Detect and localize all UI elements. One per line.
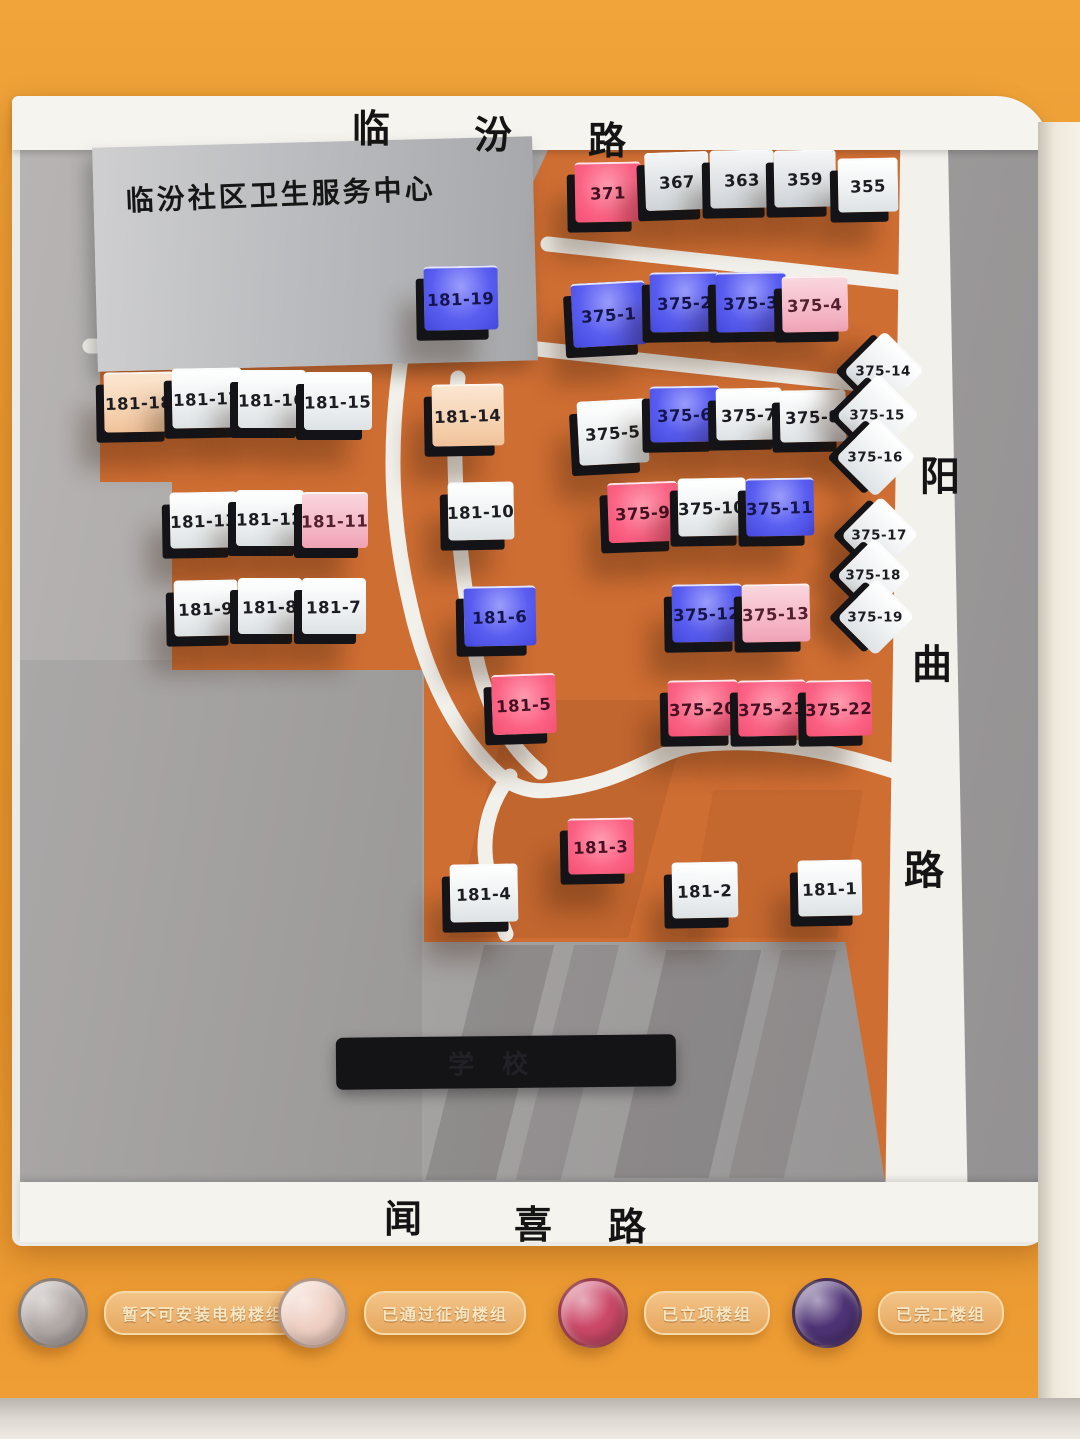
legend-label: 暂不可安装电梯楼组: [104, 1291, 302, 1335]
map-tile-375-11: 375-11: [745, 477, 814, 536]
map-tile-label: 181-15: [304, 392, 372, 412]
map-tile-367: 367: [644, 151, 710, 211]
map-tile-label: 375-6: [657, 405, 713, 426]
legend-item: 已立项楼组: [558, 1278, 770, 1348]
map-tile-181-18: 181-18: [103, 371, 174, 432]
map-tile-label: 375-2: [657, 293, 713, 314]
map-tile-359: 359: [774, 149, 837, 207]
map-tile-label: 375-7: [721, 405, 777, 426]
health-center-panel: 临汾社区卫生服务中心: [92, 136, 538, 371]
map-tile-label: 375-4: [787, 295, 843, 316]
map-tile-181-1: 181-1: [798, 859, 863, 916]
map-tile-label: 181-7: [306, 597, 362, 617]
map-tile-label: 375-13: [742, 603, 810, 624]
street-bottom-char: 路: [608, 1196, 646, 1251]
street-top-char: 路: [588, 110, 626, 165]
map-tile-label: 375-1: [581, 304, 637, 327]
map-tile-181-4: 181-4: [449, 863, 518, 922]
map-tile-181-9: 181-9: [174, 579, 239, 636]
map-tile-375-10: 375-10: [677, 477, 746, 536]
photo-canvas: 临汾社区卫生服务中心 学校 371367363359355181-19375-1…: [0, 0, 1080, 1439]
map-tile-363: 363: [709, 149, 774, 208]
map-tile-375-3: 375-3: [715, 271, 786, 332]
map-tile-label: 181-16: [238, 390, 306, 410]
street-top-char: 临: [352, 98, 390, 153]
street-right-char: 曲: [912, 632, 952, 690]
map-tile-label: 375-20: [669, 698, 737, 719]
map-tile-181-17: 181-17: [171, 367, 242, 428]
map-tile-181-14: 181-14: [431, 383, 504, 446]
map-tile-label: 181-11: [301, 511, 369, 531]
map-tile-375-8: 375-8: [780, 389, 847, 442]
map-tile-label: 181-10: [447, 501, 515, 522]
map-tile-181-13: 181-13: [170, 491, 239, 548]
map-tile-label: 363: [724, 170, 761, 190]
map-tile-label: 371: [590, 183, 627, 203]
map-tile-label: 375-3: [723, 293, 779, 314]
legend-item: 已完工楼组: [792, 1278, 1004, 1348]
map-tile-181-3: 181-3: [568, 817, 635, 874]
map-tile-label: 181-3: [573, 837, 629, 858]
health-center-label: 临汾社区卫生服务中心: [92, 133, 534, 221]
map-tile-181-6: 181-6: [463, 585, 536, 646]
map-tile-375-13: 375-13: [741, 583, 810, 642]
wall-edge-bottom: [0, 1398, 1080, 1439]
legend-color-dot: [278, 1278, 348, 1348]
map-tile-181-8: 181-8: [238, 578, 302, 634]
map-tile-label: 181-6: [472, 607, 528, 628]
map-tile-label: 375-5: [585, 422, 641, 445]
map-tile-label: 181-9: [178, 599, 234, 620]
map-tile-label: 375-21: [738, 698, 806, 719]
map-tile-label: 181-17: [173, 388, 241, 409]
legend-item: 暂不可安装电梯楼组: [18, 1278, 302, 1348]
map-tile-label: 181-8: [242, 597, 298, 617]
map-tile-375-22: 375-22: [806, 679, 873, 736]
map-tile-371: 371: [574, 161, 641, 222]
map-tile-375-21: 375-21: [738, 679, 807, 736]
map-tile-label: 375-10: [678, 497, 746, 518]
legend-color-dot: [792, 1278, 862, 1348]
map-tile-label: 181-5: [496, 694, 552, 716]
map-tile-355: 355: [838, 157, 899, 212]
wall-edge-right: [1038, 122, 1080, 1439]
map-tile-label: 181-14: [434, 405, 502, 426]
legend-color-dot: [18, 1278, 88, 1348]
map-tile-181-12: 181-12: [236, 490, 304, 546]
map-tile-label: 359: [787, 169, 824, 189]
map-tile-375-20: 375-20: [668, 679, 739, 736]
map-tile-181-5: 181-5: [491, 673, 557, 735]
map-tile-181-11: 181-11: [302, 492, 368, 548]
map-tile-181-15: 181-15: [304, 372, 372, 430]
map-tile-label: 181-12: [236, 509, 304, 529]
map-tile-label: 375-9: [615, 502, 671, 524]
map-tile-label: 181-13: [170, 510, 238, 531]
legend-label: 已通过征询楼组: [364, 1291, 526, 1335]
map-tile-label: 181-1: [802, 879, 858, 900]
map-tile-label: 181-19: [427, 288, 495, 309]
map-tile-181-16: 181-16: [238, 370, 306, 428]
map-tile-375-9: 375-9: [607, 481, 679, 543]
map-tile-181-2: 181-2: [672, 861, 739, 918]
map-tile-label: 375-8: [785, 407, 841, 428]
street-bottom-char: 喜: [514, 1194, 552, 1249]
school-sign: 学校: [336, 1034, 677, 1090]
map-tile-label: 181-4: [456, 884, 512, 905]
map-tile-375-2: 375-2: [649, 271, 720, 332]
legend-item: 已通过征询楼组: [278, 1278, 526, 1348]
map-tile-label: 375-19: [848, 610, 904, 626]
map-tile-label: 181-2: [677, 881, 733, 902]
school-sign-label: 学校: [448, 1043, 556, 1081]
legend-color-dot: [558, 1278, 628, 1348]
map-tile-label: 375-11: [746, 497, 814, 518]
street-bottom-char: 闻: [384, 1188, 422, 1243]
legend-label: 已完工楼组: [878, 1291, 1004, 1335]
map-tile-181-19: 181-19: [423, 265, 498, 330]
map-tile-181-10: 181-10: [447, 481, 514, 540]
street-top-char: 汾: [474, 104, 512, 159]
street-right-char: 阳: [920, 444, 960, 502]
map-tile-375-6: 375-6: [650, 385, 721, 442]
map-tile-375-5: 375-5: [576, 398, 649, 466]
map-tile-label: 181-18: [105, 392, 173, 413]
map-tile-label: 367: [659, 172, 696, 193]
map-tile-label: 375-16: [847, 450, 903, 466]
legend-label: 已立项楼组: [644, 1291, 770, 1335]
map-tile-375-4: 375-4: [782, 275, 849, 332]
map-tile-181-7: 181-7: [302, 578, 366, 634]
map-tile-label: 355: [850, 176, 887, 196]
map-tile-375-12: 375-12: [671, 583, 742, 642]
street-right-char: 路: [904, 838, 944, 896]
map-tile-375-1: 375-1: [570, 280, 647, 348]
map-tile-label: 375-22: [805, 698, 873, 719]
map-tile-label: 375-12: [673, 603, 741, 624]
map-tile-375-7: 375-7: [716, 387, 783, 440]
